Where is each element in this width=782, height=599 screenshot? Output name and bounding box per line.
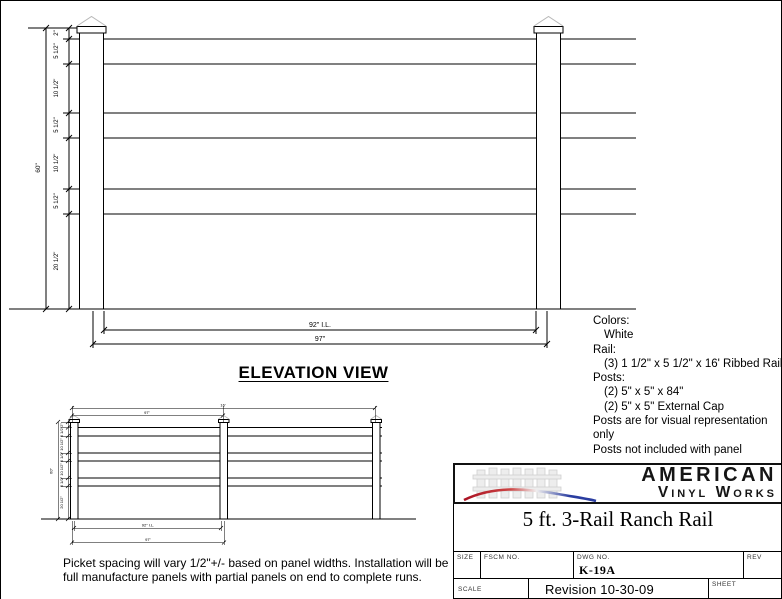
rev-cell: REV [743,552,782,579]
specs-list: Colors: White Rail: (3) 1 1/2" x 5 1/2" … [593,314,782,457]
fscm-label: FSCM NO. [484,554,520,561]
dimension-ticks [43,25,550,347]
dim-label: 10 1/2" [59,463,64,476]
scale-cell: SCALE [453,579,528,599]
cap-profile-lines [77,17,563,27]
bay-length-label: 97" [144,410,150,415]
dim-label: 10 1/2" [54,79,60,98]
revision-value: Revision 10-30-09 [545,582,654,597]
dim-label: 5 1/2" [59,476,64,487]
company-logo: AMERICAN Vinyl Works [453,463,782,504]
specs-line: (2) 5" x 5" External Cap [593,400,782,414]
overall-height-label: 60" [35,163,42,173]
dim-label: 2" [59,423,64,427]
dim-label: 20 1/2" [59,496,64,509]
elevation-view-title: ELEVATION VIEW [201,363,426,383]
specs-line: White [593,328,782,342]
panel-length-label: 97" [315,336,326,343]
run-overall-height-label: 60" [49,467,54,473]
scale-label: SCALE [458,586,482,593]
specs-line: (2) 5" x 5" x 84" [593,385,782,399]
dwg-no-cell: DWG NO. K-19A [573,552,743,579]
run-dimension-lines [58,406,375,545]
specs-line: Colors: [593,314,782,328]
fscm-cell: FSCM NO. [480,552,573,579]
specs-line: Posts not included with panel [593,443,782,457]
dim-label: 20 1/2" [54,252,60,271]
dwg-no-value: K-19A [579,563,616,578]
dim-label: 10 1/2" [59,438,64,451]
title-block: AMERICAN Vinyl Works 5 ft. 3-Rail Ranch … [453,463,782,598]
size-cell: SIZE [453,552,480,579]
specs-line: Posts: [593,371,782,385]
dim-label: 5 1/2" [54,193,60,208]
product-title: 5 ft. 3-Rail Ranch Rail [453,504,782,552]
post-caps [77,27,563,34]
dwg-no-label: DWG NO. [577,554,610,561]
run-posts [71,422,381,519]
elevation-view-drawing: 2" 5 1/2" 10 1/2" 5 1/2" 10 1/2" 5 1/2" … [9,17,636,349]
installation-notes: Picket spacing will vary 1/2"+/- based o… [63,557,465,585]
dim-label: 2" [54,30,60,35]
company-name-line2: Vinyl Works [641,484,777,502]
run-inside-length-label: 92" I.L. [142,523,155,528]
dim-label: 10 1/2" [54,154,60,173]
posts [80,33,561,310]
run-panel-length-label: 97" [145,537,151,542]
revision-cell: Revision 10-30-09 [528,579,708,599]
sheet-cell: SHEET [708,579,782,599]
rev-label: REV [747,554,762,561]
company-name-line1: AMERICAN [641,466,777,484]
run-cap-profiles [69,416,382,420]
dimension-lines [28,28,547,348]
run-length-label: 16' [220,403,225,408]
inside-length-label: 92" I.L. [309,322,331,329]
specs-line: Posts are for visual representation only [593,414,782,443]
specs-line: Rail: [593,343,782,357]
dim-label: 5 1/2" [54,43,60,58]
company-name: AMERICAN Vinyl Works [641,466,777,502]
sheet-label: SHEET [712,581,736,588]
dim-label: 5 1/2" [59,451,64,462]
drawing-sheet: 2" 5 1/2" 10 1/2" 5 1/2" 10 1/2" 5 1/2" … [0,0,782,599]
run-dimension-ticks [56,406,377,545]
run-view-drawing: 16' 97" 2" 5 1/2" 10 1/2" 5 1/2" 10 1/2"… [41,403,416,546]
fence-logo-graphic [463,466,598,504]
specs-line: (3) 1 1/2" x 5 1/2" x 16' Ribbed Rail [593,357,782,371]
dim-label: 5 1/2" [59,426,64,437]
size-label: SIZE [457,554,473,561]
dim-label: 5 1/2" [54,117,60,132]
run-post-caps [69,419,382,422]
